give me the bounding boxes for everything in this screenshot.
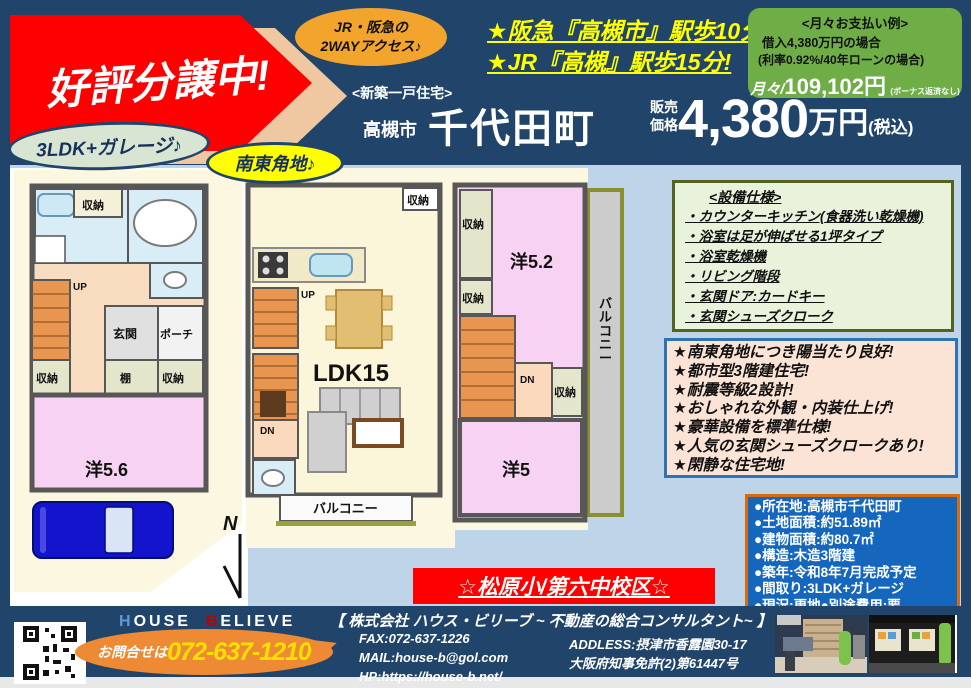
access-bubble: JR・阪急の 2WAYアクセス♪ xyxy=(295,8,447,66)
station-access: ★阪急『高槻市』駅歩10分! ★JR『高槻』駅歩15分! xyxy=(487,16,771,78)
dining-table xyxy=(326,290,392,348)
spec-item: ・浴室は足が伸ばせる1坪タイプ xyxy=(685,227,943,247)
svg-text:収納: 収納 xyxy=(36,371,58,385)
spec-item: ・浴室乾燥機 xyxy=(685,247,943,267)
station-line-hankyu: ★阪急『高槻市』駅歩10分! xyxy=(487,16,771,47)
price-value: 4,380 xyxy=(678,92,808,146)
floor1-plan: 収納 UP 玄関 ポーチ 収納 棚 収納 洋5.6 xyxy=(32,186,206,490)
floor3-plan: バルコニー 収納 収納 洋5.2 DN 収納 洋5 xyxy=(455,185,622,520)
closet-label: 収納 xyxy=(82,198,104,212)
license-line: 大阪府知事免許(2)第61447号 xyxy=(569,655,747,674)
floor2-plan: 収納 UP DN xyxy=(248,185,440,526)
feature-item: ★人気の玄関シューズクロークあり! xyxy=(673,438,951,457)
access-bubble-line1: JR・阪急の xyxy=(334,18,408,37)
svg-text:収納: 収納 xyxy=(462,291,484,305)
fax-line: FAX:072-637-1226 xyxy=(359,630,508,649)
floor-plans: 収納 UP 玄関 ポーチ 収納 棚 収納 洋5.6 xyxy=(10,168,660,630)
detail-item: ●築年:令和8年7月完成予定 xyxy=(754,565,957,581)
price-tax: (税込) xyxy=(868,113,913,138)
dn-label-2f: DN xyxy=(260,426,274,437)
up-label: UP xyxy=(73,282,87,293)
contact-bubble: お問合せは 072-637-1210 xyxy=(75,629,333,675)
car xyxy=(33,502,173,558)
specs-title: <設備仕様> xyxy=(685,187,943,207)
company-name: 【 株式会社 ハウス・ビリーブ ~ 不動産の総合コンサルタント~ 】 xyxy=(329,610,771,631)
payment-loan: 借入4,380万円の場合 xyxy=(748,32,962,51)
features-box: ★南東角地につき陽当たり良好! ★都市型3階建住宅! ★耐震等級2設計! ★おし… xyxy=(664,338,958,478)
spec-item: ・玄関シューズクローク xyxy=(685,307,943,327)
shelf-label: 棚 xyxy=(120,371,131,385)
balcony-2f: バルコニー xyxy=(276,495,416,526)
room5-label: 洋5 xyxy=(502,459,530,480)
payment-example-box: <月々お支払い例> 借入4,380万円の場合 (利率0.92%/40年ローンの場… xyxy=(748,8,962,98)
washbasin-icon xyxy=(38,194,74,216)
compass-n-label: N xyxy=(223,513,238,535)
feature-item: ★おしゃれな外観・内装仕上げ! xyxy=(673,400,951,419)
sink-icon xyxy=(310,254,352,276)
detail-item: ●所在地:高槻市千代田町 xyxy=(754,499,957,515)
office-exterior-photo xyxy=(869,615,955,673)
price-unit: 万円 xyxy=(808,98,868,142)
feature-item: ★都市型3階建住宅! xyxy=(673,363,951,382)
mail-line: MAIL:house-b@gol.com xyxy=(359,649,508,668)
flyer-page: 好評分譲中! JR・阪急の 2WAYアクセス♪ ★阪急『高槻市』駅歩10分! ★… xyxy=(0,0,971,688)
svg-text:収納: 収納 xyxy=(162,371,184,385)
stove-icon xyxy=(258,252,288,278)
shelf xyxy=(105,360,158,395)
balcony2-label: バルコニー xyxy=(313,501,378,516)
address-block: ADDLESS:摂津市香露園30-17 大阪府知事免許(2)第61447号 xyxy=(569,636,747,674)
entrance-label: 玄関 xyxy=(113,326,137,341)
detail-item: ●建物面積:約80.7㎡ xyxy=(754,532,957,548)
qr-pattern xyxy=(23,626,77,680)
svg-text:UP: UP xyxy=(301,290,315,301)
brand-line: HOUSE BELIEVE 【 株式会社 ハウス・ビリーブ ~ 不動産の総合コン… xyxy=(119,610,772,631)
office-photos xyxy=(775,615,955,673)
station-line-jr: ★JR『高槻』駅歩15分! xyxy=(487,47,771,78)
feature-item: ★閑静な住宅地! xyxy=(673,457,951,476)
feature-item: ★南東角地につき陽当たり良好! xyxy=(673,344,951,363)
footer-band: HOUSE BELIEVE 【 株式会社 ハウス・ビリーブ ~ 不動産の総合コン… xyxy=(9,606,962,677)
detail-item: ●間取り:3LDK+ガレージ xyxy=(754,581,957,597)
side-table xyxy=(260,391,286,417)
school-district-banner: ☆松原小/第六中校区☆ xyxy=(413,568,715,604)
address-line: ADDLESS:摂津市香露園30-17 xyxy=(569,636,747,655)
payment-title: <月々お支払い例> xyxy=(748,13,962,32)
town-label: 千代田町 xyxy=(428,96,596,154)
stairs-1f xyxy=(32,280,70,360)
svg-text:収納: 収納 xyxy=(462,217,484,231)
kitchen-counter xyxy=(253,248,365,282)
spec-item: ・リビング階段 xyxy=(685,267,943,287)
porch-label: ポーチ xyxy=(160,327,193,341)
bathtub-icon xyxy=(134,200,196,246)
payment-rate: (利率0.92%/40年ローンの場合) xyxy=(748,51,962,68)
office-interior-photo xyxy=(775,615,867,673)
balcony3-label: バルコニー xyxy=(599,296,612,366)
spec-item: ・玄関ドア:カードキー xyxy=(685,287,943,307)
feature-item: ★耐震等級2設計! xyxy=(673,382,951,401)
access-bubble-line2: 2WAYアクセス♪ xyxy=(321,37,422,56)
room56-label: 洋5.6 xyxy=(85,459,128,480)
svg-text:収納: 収納 xyxy=(554,385,576,399)
ldk-label: LDK15 xyxy=(313,360,389,387)
contact-phone: 072-637-1210 xyxy=(167,638,311,667)
bubble-southeast-corner: 南東角地♪ xyxy=(206,142,344,184)
closet-3f-1 xyxy=(460,190,492,278)
svg-text:収納: 収納 xyxy=(407,193,429,207)
detail-item: ●構造:木造3階建 xyxy=(754,548,957,564)
photo-separator xyxy=(955,615,957,673)
property-details-box: ●所在地:高槻市千代田町 ●土地面積:約51.89㎡ ●建物面積:約80.7㎡ … xyxy=(745,494,960,615)
car-windshield xyxy=(105,507,133,553)
armchair xyxy=(308,412,346,472)
contact-prefix: お問合せは xyxy=(97,642,167,662)
detail-item: ●土地面積:約51.89㎡ xyxy=(754,515,957,531)
room52-label: 洋5.2 xyxy=(510,251,553,272)
low-table xyxy=(354,420,402,446)
right-border xyxy=(961,0,971,677)
hp-line: HP:https://house-b.net/ xyxy=(359,668,508,687)
specs-box: <設備仕様> ・カウンターキッチン(食器洗い乾燥機) ・浴室は足が伸ばせる1坪タ… xyxy=(672,180,954,332)
price-group: 販売 価格 4,380 万円 (税込) xyxy=(650,92,913,146)
price-label: 販売 価格 xyxy=(650,99,678,134)
city-label: 高槻市 xyxy=(363,116,417,142)
stairs-3f xyxy=(460,316,515,418)
spec-item: ・カウンターキッチン(食器洗い乾燥機) xyxy=(685,207,943,227)
feature-item: ★豪華設備を標準仕様! xyxy=(673,419,951,438)
dn-label-3f: DN xyxy=(520,375,534,386)
toilet-icon xyxy=(164,272,186,288)
contact-block: FAX:072-637-1226 MAIL:house-b@gol.com HP… xyxy=(359,630,508,687)
